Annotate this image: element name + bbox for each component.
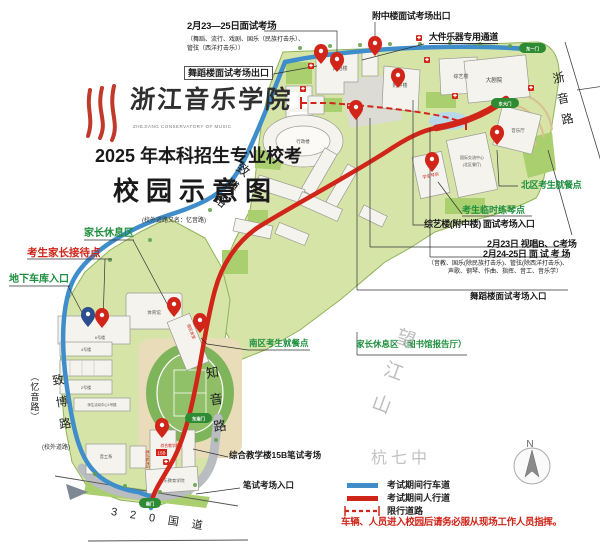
gate-dongnanmen: 东南门 xyxy=(192,416,206,423)
erhaolou-label: 2号楼 xyxy=(81,384,91,390)
tag-15b: 15B xyxy=(156,449,167,456)
legend-notice: 车辆、人员进入校园后请务必服从现场工作人员指挥。 xyxy=(341,518,562,529)
dajuyuan-label: 大剧院 xyxy=(486,76,503,84)
callout-written-exam-15b: 综合教学楼15B笔试考场 xyxy=(229,451,321,461)
bishi-area-label: 笔试候考区 xyxy=(145,450,150,469)
callout-written-entrance: 笔试考场入口 xyxy=(243,481,294,491)
callout-wudao-entrance: 舞蹈楼面试考场入口 xyxy=(470,292,547,302)
place-hangqizhong: 杭七中 xyxy=(371,450,431,468)
page-title: 2025 年本科招生专业校考 xyxy=(95,146,302,167)
logo-name-en: ZHEJIANG CONSERVATORY OF MUSIC xyxy=(133,124,232,129)
callout-south-dining: 南区考生就餐点 xyxy=(249,339,309,349)
callout-exam0224-sub2: 声歌、钢琴、作曲、指挥、音工、音乐学） xyxy=(448,269,562,276)
logo-name-cn: 浙江音乐学院 xyxy=(129,86,293,115)
callout-exam0223-sub1: （舞蹈、流行、戏剧、国乐（民族打击乐）、 xyxy=(187,37,304,44)
intl-center-label-1: 国际交流中心 xyxy=(460,154,484,160)
yinyueting-label: 音乐厅 xyxy=(511,127,525,134)
road-zhibo-lower-alias: （忆音路） xyxy=(29,372,39,422)
legend-drive-swatch xyxy=(347,483,378,488)
callout-parents-rest: 家长休息区 xyxy=(84,228,134,240)
logo-seal-icon xyxy=(88,86,115,140)
callout-exam0223-sight: 2月23日 视唱B、C考场 xyxy=(487,239,577,249)
legend-drive-label: 考试期间行车道 xyxy=(387,480,450,490)
callout-north-dining: 北区考生就餐点 xyxy=(521,180,581,190)
sihaolou-label: 4号楼 xyxy=(81,346,91,352)
callout-exam0224-sub1: （音教、国乐(除民族打击乐)、管弦(除西洋打击乐)、 xyxy=(428,261,568,268)
compass-n-label: N xyxy=(526,439,533,450)
legend-swatches xyxy=(345,483,379,516)
campus-map-screenshot: 舞蹈楼 附中楼 综艺楼 大剧院 行政楼 音乐厅 国际交流中心 (北区餐厅) 学生… xyxy=(0,0,600,550)
page-subtitle: 校园示意图 xyxy=(113,178,278,208)
callout-wudao-exit: 舞蹈楼面试考场出口 xyxy=(184,66,273,80)
callout-parents-reception: 考生家长接待点 xyxy=(27,247,101,259)
callout-fuzhong-exit: 附中楼面试考场出口 xyxy=(372,11,450,21)
callout-exam0223-title: 2月23—25日面试考场 xyxy=(187,22,276,33)
gate-dongyimen: 东一门 xyxy=(526,46,540,53)
liuhaolou-label: 6号楼 xyxy=(95,334,105,340)
b15-label: 15B xyxy=(157,451,165,456)
yihaolou-label: 师生活动中心1号楼 xyxy=(87,402,117,407)
gate-dongdamen: 东大门 xyxy=(499,101,513,108)
intl-center-label-2: (北区餐厅) xyxy=(463,161,482,167)
compass: N xyxy=(514,439,550,484)
gate-nanmen: 南门 xyxy=(146,501,155,508)
callout-piano-practice: 考生临时练琴点 xyxy=(462,205,525,215)
callout-zongyi-entrance: 综艺楼(附中楼) 面试考场入口 xyxy=(424,219,535,229)
callout-exam0224-title: 2月24-25日 面 试 考 场 xyxy=(483,249,570,259)
tiyuguan-label: 体育馆 xyxy=(147,309,161,316)
callout-garage-entrance: 地下车库入口 xyxy=(9,274,69,286)
callout-exam0223-sub2: 管弦（西洋打击乐）） xyxy=(187,46,244,53)
legend-walk-swatch xyxy=(347,496,378,501)
legend-walk-label: 考试期间人行道 xyxy=(387,493,450,503)
road-zhibo-lower-note: (校外道路) xyxy=(42,445,70,452)
zongyilou-label: 综艺楼 xyxy=(453,73,468,80)
xingzhenglou-label: 行政楼 xyxy=(296,138,310,145)
yingongxi-label: 音工系 xyxy=(100,453,113,460)
road-zhibo-upper-note: (校外道路又名：忆音路) xyxy=(142,218,206,225)
callout-instrument-channel: 大件乐器专用通道 xyxy=(429,32,498,44)
legend-restricted-swatch xyxy=(345,506,379,516)
legend-restricted-label: 限行道路 xyxy=(387,506,423,516)
